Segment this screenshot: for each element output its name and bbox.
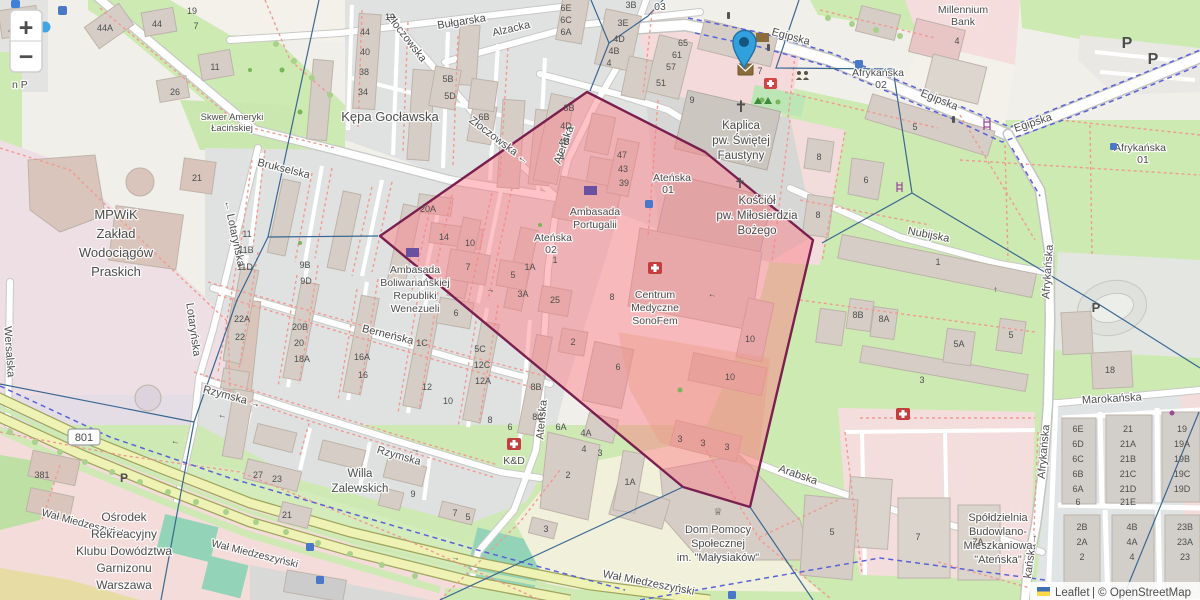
svg-text:5: 5 [912,122,917,132]
svg-text:7A: 7A [972,537,983,547]
svg-text:19D: 19D [1174,484,1191,494]
svg-text:3E: 3E [617,18,628,28]
svg-text:Zalewskich: Zalewskich [332,483,389,495]
svg-text:19B: 19B [1174,454,1190,464]
svg-text:5: 5 [465,512,470,522]
svg-text:6: 6 [615,362,620,372]
svg-text:| © OpenStreetMap: | © OpenStreetMap [1092,587,1191,599]
svg-text:7: 7 [193,21,198,31]
svg-text:+: + [19,14,34,42]
svg-text:19A: 19A [1174,439,1190,449]
svg-text:12A: 12A [475,376,491,386]
svg-text:16: 16 [358,370,368,380]
svg-text:44: 44 [152,19,162,29]
svg-text:7: 7 [915,532,920,542]
svg-text:11B: 11B [238,245,253,255]
svg-text:57: 57 [666,62,676,72]
svg-text:1C: 1C [416,338,428,348]
svg-text:6A: 6A [1072,484,1083,494]
svg-text:Spółdzielnia: Spółdzielnia [968,512,1028,524]
svg-text:Leaflet: Leaflet [1055,587,1090,599]
svg-text:2B: 2B [1076,522,1087,532]
svg-text:Ambasada: Ambasada [570,206,620,218]
svg-text:P: P [120,471,128,485]
svg-text:Warszawa: Warszawa [96,578,152,592]
svg-text:6B: 6B [1072,469,1083,479]
svg-text:Republiki: Republiki [393,290,436,302]
svg-text:11: 11 [242,229,251,239]
svg-text:3: 3 [677,434,682,444]
svg-text:Kościół: Kościół [738,195,776,207]
svg-text:34: 34 [358,87,368,97]
svg-text:✝: ✝ [734,99,747,116]
svg-text:4: 4 [581,444,586,454]
svg-text:6A: 6A [560,27,571,37]
svg-text:2A: 2A [1076,537,1087,547]
svg-text:22A: 22A [234,314,250,324]
svg-text:n P: n P [12,79,28,91]
svg-text:P: P [1122,35,1133,52]
svg-text:21: 21 [1123,424,1133,434]
svg-text:1A: 1A [624,477,635,487]
svg-text:38: 38 [359,67,369,77]
svg-text:Kaplica: Kaplica [722,120,760,132]
svg-text:51: 51 [656,78,666,88]
svg-text:44A: 44A [97,23,113,33]
svg-text:27: 27 [253,470,263,480]
svg-text:25: 25 [550,295,560,305]
svg-text:2: 2 [1079,552,1084,562]
svg-text:Afrykańska: Afrykańska [852,67,904,79]
svg-text:6C: 6C [560,15,572,25]
svg-text:♕: ♕ [714,507,723,518]
svg-text:3: 3 [700,438,705,448]
svg-text:02: 02 [875,79,887,91]
svg-text:4: 4 [954,36,959,46]
svg-text:3: 3 [543,524,548,534]
svg-text:801: 801 [75,432,93,444]
svg-text:8: 8 [609,292,614,302]
svg-text:21E: 21E [1120,497,1136,507]
svg-text:4A: 4A [580,428,591,438]
svg-text:21: 21 [192,173,202,183]
svg-text:9B: 9B [299,260,310,270]
svg-text:Łacińskiej: Łacińskiej [211,123,253,134]
svg-text:Garnizonu: Garnizonu [96,561,151,575]
svg-text:19C: 19C [1174,469,1191,479]
svg-text:8: 8 [487,415,492,425]
svg-text:26: 26 [170,87,180,97]
svg-text:Klubu Dowództwa: Klubu Dowództwa [76,544,172,558]
svg-text:23: 23 [1180,552,1190,562]
svg-text:40: 40 [360,47,370,57]
svg-text:Ambasada: Ambasada [390,264,440,276]
svg-text:19: 19 [385,12,395,22]
svg-text:8B: 8B [852,310,863,320]
svg-text:8C: 8C [532,412,544,422]
svg-text:5B: 5B [442,74,453,84]
svg-text:5D: 5D [444,91,456,101]
svg-text:4A: 4A [1126,537,1137,547]
svg-text:K&D: K&D [503,455,525,467]
svg-text:Faustyny: Faustyny [718,150,765,162]
svg-text:MPWiK: MPWiK [94,207,138,222]
svg-text:pw. Miłosierdzia: pw. Miłosierdzia [716,210,798,222]
svg-text:"Ateńska": "Ateńska" [974,554,1022,566]
svg-text:8A: 8A [878,314,889,324]
svg-text:Kępa Gocławska: Kępa Gocławska [341,109,439,124]
svg-text:→: → [989,285,1000,295]
svg-text:61: 61 [672,50,682,60]
svg-text:18A: 18A [294,354,310,364]
svg-text:16A: 16A [354,352,370,362]
svg-text:65: 65 [678,38,688,48]
svg-text:Afrykańska: Afrykańska [1114,142,1166,154]
svg-text:P: P [1148,51,1159,68]
svg-text:✝: ✝ [734,175,746,191]
svg-text:4D: 4D [560,121,572,131]
svg-text:im. "Małysiaków": im. "Małysiaków" [677,552,759,564]
svg-text:5C: 5C [474,344,486,354]
svg-text:5: 5 [1008,330,1013,340]
svg-text:9: 9 [410,489,415,499]
svg-text:6E: 6E [560,3,571,13]
svg-text:3A: 3A [517,289,528,299]
svg-text:44: 44 [360,27,370,37]
svg-text:1A: 1A [524,262,535,272]
svg-text:4: 4 [1129,552,1134,562]
svg-text:23B: 23B [1177,522,1193,532]
svg-text:5: 5 [510,270,515,280]
svg-text:Zakład: Zakład [96,226,135,241]
svg-text:4D: 4D [613,34,625,44]
svg-text:11D: 11D [237,262,253,272]
svg-text:3: 3 [919,375,924,385]
svg-text:−: − [19,43,34,71]
svg-text:01: 01 [1137,154,1149,166]
svg-text:Ateńska: Ateńska [653,172,691,184]
svg-text:Millennium: Millennium [938,4,988,16]
svg-text:Willa: Willa [348,468,374,480]
svg-text:Bank: Bank [951,16,976,28]
svg-text:18: 18 [1105,365,1115,375]
svg-text:8B: 8B [530,382,541,392]
svg-text:Skwer Ameryki: Skwer Ameryki [201,112,264,123]
svg-text:6A: 6A [555,422,566,432]
svg-text:1: 1 [935,257,940,267]
svg-text:5: 5 [829,527,834,537]
svg-text:3B: 3B [625,0,636,10]
svg-text:7: 7 [465,262,470,272]
svg-text:20A: 20A [420,204,436,214]
svg-text:Społecznej: Społecznej [691,538,745,550]
svg-text:Dom Pomocy: Dom Pomocy [685,524,752,536]
svg-text:4B: 4B [608,46,619,56]
svg-text:3: 3 [597,448,602,458]
svg-text:9: 9 [689,95,694,105]
svg-text:11: 11 [210,62,219,72]
svg-text:pw. Świętej: pw. Świętej [712,134,770,147]
svg-text:10: 10 [725,372,735,382]
svg-text:6C: 6C [1072,454,1084,464]
svg-text:39: 39 [619,178,629,188]
svg-text:10: 10 [465,238,475,248]
svg-text:20B: 20B [292,322,308,332]
svg-text:21C: 21C [1120,469,1137,479]
svg-text:03: 03 [654,1,666,13]
svg-text:21B: 21B [1120,454,1136,464]
svg-text:12C: 12C [474,360,491,370]
svg-text:7: 7 [452,508,457,518]
svg-text:Boliwariańskiej: Boliwariańskiej [380,277,449,289]
svg-text:14: 14 [439,232,449,242]
svg-text:P: P [1092,300,1101,315]
svg-text:22: 22 [235,332,245,342]
svg-text:6: 6 [453,308,458,318]
svg-text:Ateńska: Ateńska [534,232,572,244]
svg-text:Ośrodek: Ośrodek [101,510,147,524]
svg-text:6D: 6D [1072,439,1084,449]
svg-text:Praskich: Praskich [91,264,141,279]
svg-text:23A: 23A [1177,537,1193,547]
svg-text:6: 6 [863,175,868,185]
svg-text:10: 10 [443,396,453,406]
svg-text:8: 8 [815,210,820,220]
svg-text:Portugalii: Portugalii [573,219,617,231]
svg-text:4: 4 [559,152,564,162]
svg-text:9D: 9D [300,276,312,286]
svg-text:3: 3 [724,442,729,452]
svg-text:5A: 5A [953,339,964,349]
svg-text:6B: 6B [478,112,489,122]
svg-text:6: 6 [507,422,512,432]
svg-text:8: 8 [816,152,821,162]
svg-text:7: 7 [757,66,762,76]
svg-text:47: 47 [617,150,627,160]
svg-text:1: 1 [552,255,557,265]
svg-text:43: 43 [618,164,628,174]
svg-text:21A: 21A [1120,439,1136,449]
svg-text:Wenezueli: Wenezueli [391,303,440,315]
svg-text:19: 19 [1177,424,1187,434]
svg-text:Centrum: Centrum [635,289,676,301]
svg-text:2: 2 [570,337,575,347]
svg-text:6: 6 [1075,497,1080,507]
svg-text:3B: 3B [563,103,574,113]
svg-text:10: 10 [745,334,755,344]
svg-text:SonoFem: SonoFem [632,315,678,327]
svg-text:21D: 21D [1120,484,1137,494]
svg-text:Bożego: Bożego [737,225,776,237]
svg-text:Medyczne: Medyczne [631,302,679,314]
svg-text:19: 19 [187,6,197,16]
svg-text:20: 20 [294,338,304,348]
svg-text:4B: 4B [558,137,569,147]
svg-text:2: 2 [565,470,570,480]
svg-text:12: 12 [422,382,432,392]
svg-text:01: 01 [662,184,674,196]
svg-text:4: 4 [606,58,611,68]
svg-text:Rekreacyjny: Rekreacyjny [91,527,157,541]
svg-text:23: 23 [272,474,282,484]
svg-text:21: 21 [282,510,292,520]
svg-text:6E: 6E [1072,424,1083,434]
svg-text:4B: 4B [1126,522,1137,532]
svg-text:Wodociągów: Wodociągów [79,245,154,260]
svg-text:381: 381 [34,470,49,480]
